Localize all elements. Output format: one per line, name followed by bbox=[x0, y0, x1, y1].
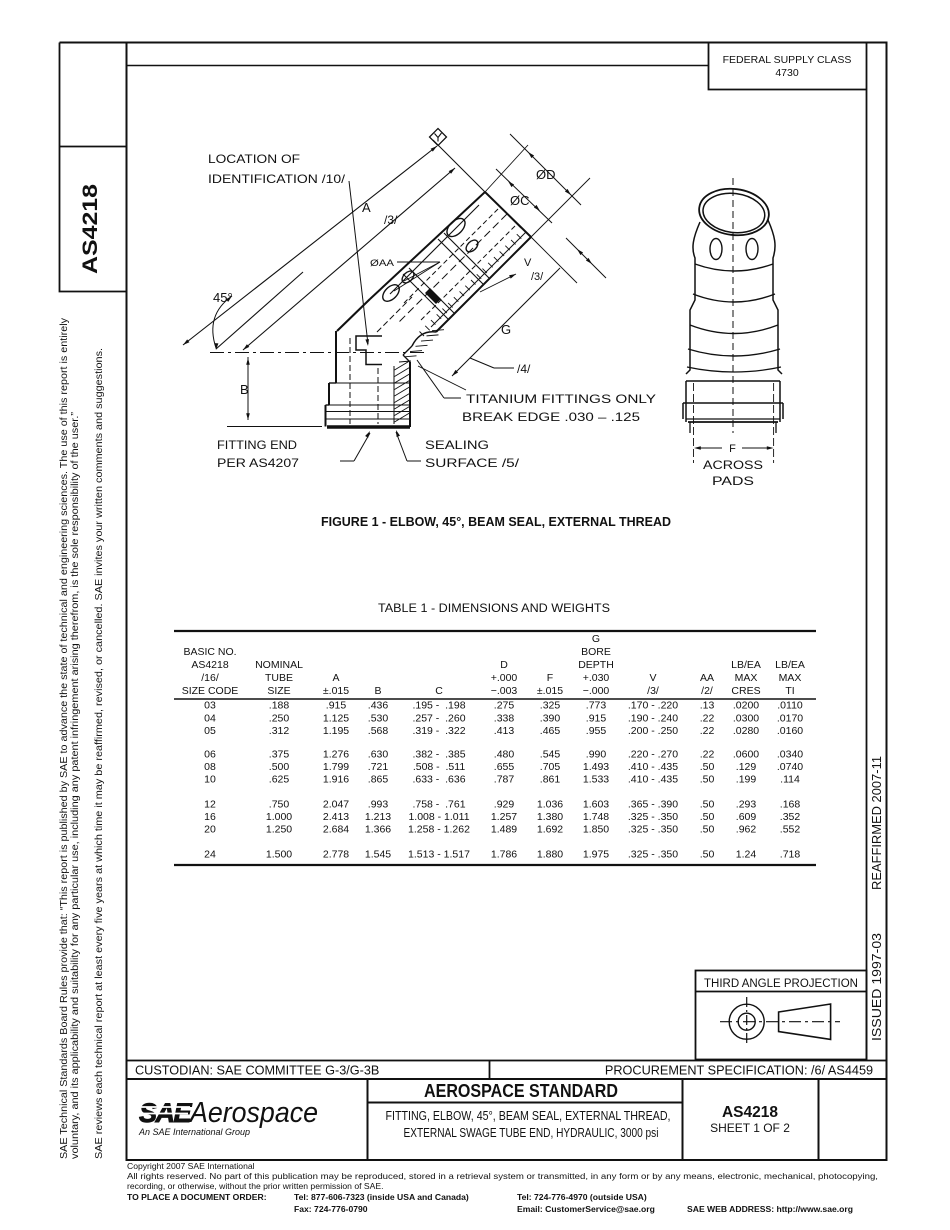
svg-text:BASIC NO.: BASIC NO. bbox=[183, 646, 236, 658]
svg-text:1.489: 1.489 bbox=[491, 824, 517, 836]
svg-text:BREAK EDGE .030 – .125: BREAK EDGE .030 – .125 bbox=[462, 410, 640, 424]
svg-text:16: 16 bbox=[204, 811, 216, 823]
svg-text:ISSUED 1997-03: ISSUED 1997-03 bbox=[869, 933, 884, 1041]
svg-text:.190 - .240: .190 - .240 bbox=[628, 712, 678, 724]
svg-text:.352: .352 bbox=[780, 811, 801, 823]
svg-text:/16/: /16/ bbox=[201, 672, 219, 684]
svg-text:Tel: 724-776-4970 (outside USA: Tel: 724-776-4970 (outside USA) bbox=[517, 1192, 647, 1202]
svg-text:.630: .630 bbox=[368, 749, 389, 761]
svg-text:REAFFIRMED 2007-11: REAFFIRMED 2007-11 bbox=[869, 756, 884, 890]
svg-text:.865: .865 bbox=[368, 774, 389, 786]
svg-text:voluntary, and its applicabili: voluntary, and its applicability and sui… bbox=[70, 412, 81, 1159]
svg-text:LB/EA: LB/EA bbox=[731, 659, 761, 671]
svg-text:1.748: 1.748 bbox=[583, 811, 609, 823]
svg-text:.655: .655 bbox=[494, 761, 515, 773]
svg-text:.915: .915 bbox=[326, 700, 347, 712]
svg-text:.338: .338 bbox=[494, 712, 515, 724]
svg-text:.0110: .0110 bbox=[777, 700, 803, 712]
svg-text:2.778: 2.778 bbox=[323, 849, 349, 861]
svg-text:.0740: .0740 bbox=[777, 761, 803, 773]
svg-text:1.513 - 1.517: 1.513 - 1.517 bbox=[408, 849, 470, 861]
svg-text:SURFACE /5/: SURFACE /5/ bbox=[425, 456, 520, 470]
svg-text:1.250: 1.250 bbox=[266, 824, 292, 836]
svg-text:.50: .50 bbox=[700, 824, 715, 836]
svg-text:.915: .915 bbox=[586, 712, 607, 724]
svg-text:.552: .552 bbox=[780, 824, 801, 836]
svg-text:B: B bbox=[240, 382, 249, 397]
svg-text:.633 - .636: .633 - .636 bbox=[412, 774, 465, 786]
svg-text:.195 - .198: .195 - .198 bbox=[412, 700, 465, 712]
svg-text:1.257: 1.257 bbox=[491, 811, 517, 823]
svg-text:THIRD ANGLE PROJECTION: THIRD ANGLE PROJECTION bbox=[704, 978, 858, 990]
svg-text:1.366: 1.366 bbox=[365, 824, 391, 836]
svg-text:2.047: 2.047 bbox=[323, 799, 349, 811]
svg-text:.955: .955 bbox=[586, 725, 607, 737]
svg-text:.705: .705 bbox=[540, 761, 561, 773]
svg-text:.390: .390 bbox=[540, 712, 561, 724]
svg-text:20: 20 bbox=[204, 824, 216, 836]
svg-text:.410 - .435: .410 - .435 bbox=[628, 774, 678, 786]
svg-text:.168: .168 bbox=[780, 799, 801, 811]
svg-text:.0200: .0200 bbox=[733, 700, 759, 712]
svg-text:recording, or otherwise, witho: recording, or otherwise, without the pri… bbox=[127, 1181, 384, 1191]
svg-text:1.545: 1.545 bbox=[365, 849, 391, 861]
svg-text:SAE WEB ADDRESS: http://www.sa: SAE WEB ADDRESS: http://www.sae.org bbox=[687, 1204, 853, 1214]
svg-text:DEPTH: DEPTH bbox=[578, 659, 614, 671]
svg-text:CRES: CRES bbox=[731, 685, 760, 697]
svg-text:.50: .50 bbox=[700, 761, 715, 773]
svg-text:.257 - .260: .257 - .260 bbox=[412, 712, 465, 724]
svg-text:−.003: −.003 bbox=[491, 685, 518, 697]
svg-text:1.799: 1.799 bbox=[323, 761, 349, 773]
svg-text:/3/: /3/ bbox=[531, 271, 544, 283]
svg-text:Copyright 2007 SAE Internation: Copyright 2007 SAE International bbox=[127, 1161, 255, 1171]
svg-text:.13: .13 bbox=[700, 700, 715, 712]
svg-text:.787: .787 bbox=[494, 774, 515, 786]
svg-text:CUSTODIAN: SAE COMMITTEE G-3/G: CUSTODIAN: SAE COMMITTEE G-3/G-3B bbox=[135, 1064, 379, 1078]
svg-text:+.030: +.030 bbox=[583, 672, 610, 684]
svg-text:NOMINAL: NOMINAL bbox=[255, 659, 303, 671]
svg-text:1.500: 1.500 bbox=[266, 849, 292, 861]
svg-text:.436: .436 bbox=[368, 700, 389, 712]
svg-text:04: 04 bbox=[204, 712, 216, 724]
svg-text:12: 12 bbox=[204, 799, 216, 811]
svg-text:PADS: PADS bbox=[712, 474, 754, 488]
svg-text:FEDERAL SUPPLY CLASS: FEDERAL SUPPLY CLASS bbox=[723, 54, 852, 66]
svg-text:TUBE: TUBE bbox=[265, 672, 293, 684]
svg-text:V: V bbox=[649, 672, 656, 684]
svg-text:.718: .718 bbox=[780, 849, 801, 861]
svg-text:LOCATION OF: LOCATION OF bbox=[208, 152, 300, 166]
svg-text:.50: .50 bbox=[700, 774, 715, 786]
svg-text:.365 - .390: .365 - .390 bbox=[628, 799, 678, 811]
svg-text:TITANIUM FITTINGS ONLY: TITANIUM FITTINGS ONLY bbox=[466, 392, 656, 406]
svg-text:2.684: 2.684 bbox=[323, 824, 349, 836]
svg-text:TI: TI bbox=[785, 685, 794, 697]
svg-text:FITTING, ELBOW, 45°, BEAM SEAL: FITTING, ELBOW, 45°, BEAM SEAL, EXTERNAL… bbox=[386, 1108, 671, 1123]
svg-text:SIZE: SIZE bbox=[267, 685, 290, 697]
svg-text:AS4218: AS4218 bbox=[79, 184, 102, 274]
svg-text:.22: .22 bbox=[700, 725, 715, 737]
svg-text:ØD: ØD bbox=[536, 167, 556, 182]
svg-text:V: V bbox=[524, 257, 532, 269]
svg-text:AA: AA bbox=[700, 672, 714, 684]
svg-text:SEALING: SEALING bbox=[425, 438, 489, 452]
svg-text:.530: .530 bbox=[368, 712, 389, 724]
svg-text:.114: .114 bbox=[780, 774, 800, 786]
svg-text:.750: .750 bbox=[269, 799, 290, 811]
svg-text:1.692: 1.692 bbox=[537, 824, 563, 836]
svg-text:F: F bbox=[729, 443, 737, 455]
svg-text:.0300: .0300 bbox=[733, 712, 759, 724]
svg-text:PER AS4207: PER AS4207 bbox=[217, 456, 299, 470]
svg-text:.508 - .511: .508 - .511 bbox=[413, 761, 466, 773]
svg-text:.250: .250 bbox=[269, 712, 290, 724]
svg-text:FITTING END: FITTING END bbox=[217, 438, 297, 452]
svg-text:.325 - .350: .325 - .350 bbox=[628, 811, 678, 823]
svg-text:PROCUREMENT SPECIFICATION: /6/: PROCUREMENT SPECIFICATION: /6/ AS4459 bbox=[605, 1064, 873, 1078]
svg-text:.200 - .250: .200 - .250 bbox=[628, 725, 678, 737]
svg-text:.382 - .385: .382 - .385 bbox=[412, 749, 465, 761]
svg-text:Aerospace: Aerospace bbox=[188, 1097, 318, 1129]
svg-text:AEROSPACE STANDARD: AEROSPACE STANDARD bbox=[424, 1080, 618, 1101]
svg-text:TABLE 1 - DIMENSIONS AND WEIGH: TABLE 1 - DIMENSIONS AND WEIGHTS bbox=[378, 603, 610, 615]
svg-text:1.258 - 1.262: 1.258 - 1.262 bbox=[408, 824, 470, 836]
svg-text:ØAA: ØAA bbox=[370, 258, 395, 269]
svg-text:ØC: ØC bbox=[510, 193, 530, 208]
svg-text:.480: .480 bbox=[494, 749, 515, 761]
svg-text:.129: .129 bbox=[736, 761, 757, 773]
svg-text:10: 10 bbox=[204, 774, 216, 786]
svg-text:06: 06 bbox=[204, 749, 216, 761]
svg-text:1.850: 1.850 bbox=[583, 824, 609, 836]
svg-text:.319 - .322: .319 - .322 bbox=[412, 725, 465, 737]
svg-text:1.380: 1.380 bbox=[537, 811, 563, 823]
svg-text:.861: .861 bbox=[540, 774, 561, 786]
svg-text:SIZE CODE: SIZE CODE bbox=[182, 685, 239, 697]
svg-text:.22: .22 bbox=[700, 712, 715, 724]
svg-text:/3/: /3/ bbox=[384, 213, 398, 227]
svg-text:.50: .50 bbox=[700, 811, 715, 823]
svg-text:.0600: .0600 bbox=[733, 749, 759, 761]
svg-text:1.036: 1.036 bbox=[537, 799, 563, 811]
svg-text:.929: .929 bbox=[494, 799, 515, 811]
svg-text:45°: 45° bbox=[213, 290, 233, 305]
svg-text:.0160: .0160 bbox=[777, 725, 803, 737]
svg-text:Tel: 877-606-7323 (inside USA: Tel: 877-606-7323 (inside USA and Canada… bbox=[294, 1192, 469, 1202]
svg-text:/3/: /3/ bbox=[647, 685, 659, 697]
svg-text:All rights reserved. No part o: All rights reserved. No part of this pub… bbox=[127, 1171, 878, 1181]
svg-text:1.493: 1.493 bbox=[583, 761, 609, 773]
svg-text:.22: .22 bbox=[700, 749, 715, 761]
svg-text:1.786: 1.786 bbox=[491, 849, 517, 861]
svg-text:IDENTIFICATION /10/: IDENTIFICATION /10/ bbox=[208, 172, 346, 186]
svg-text:.773: .773 bbox=[586, 700, 607, 712]
svg-text:±.015: ±.015 bbox=[537, 685, 563, 697]
svg-text:TO PLACE A DOCUMENT ORDER:: TO PLACE A DOCUMENT ORDER: bbox=[127, 1192, 267, 1202]
svg-text:1.916: 1.916 bbox=[323, 774, 349, 786]
svg-text:1.276: 1.276 bbox=[323, 749, 349, 761]
svg-text:/2/: /2/ bbox=[701, 685, 713, 697]
svg-text:03: 03 bbox=[204, 700, 216, 712]
svg-text:MAX: MAX bbox=[779, 672, 802, 684]
svg-text:.568: .568 bbox=[368, 725, 389, 737]
svg-text:.962: .962 bbox=[736, 824, 757, 836]
svg-text:05: 05 bbox=[204, 725, 216, 737]
svg-text:.758 - .761: .758 - .761 bbox=[412, 799, 465, 811]
svg-text:1.008 - 1.011: 1.008 - 1.011 bbox=[408, 811, 469, 823]
svg-text:1.000: 1.000 bbox=[266, 811, 292, 823]
svg-text:ACROSS: ACROSS bbox=[703, 458, 763, 472]
svg-text:1.603: 1.603 bbox=[583, 799, 609, 811]
svg-text:A: A bbox=[362, 200, 371, 215]
svg-text:G: G bbox=[501, 322, 511, 337]
svg-text:24: 24 bbox=[204, 849, 216, 861]
svg-text:SHEET 1 OF 2: SHEET 1 OF 2 bbox=[710, 1121, 790, 1135]
svg-text:An SAE International Group: An SAE International Group bbox=[138, 1127, 250, 1137]
svg-text:1.24: 1.24 bbox=[736, 849, 757, 861]
svg-text:.609: .609 bbox=[736, 811, 757, 823]
svg-text:.312: .312 bbox=[269, 725, 290, 737]
svg-text:.325 - .350: .325 - .350 bbox=[628, 849, 678, 861]
svg-text:.410 - .435: .410 - .435 bbox=[628, 761, 678, 773]
svg-text:Email: CustomerService@sae.or: Email: CustomerService@sae.org bbox=[517, 1204, 655, 1214]
svg-text:.465: .465 bbox=[540, 725, 561, 737]
svg-text:BORE: BORE bbox=[581, 646, 611, 658]
svg-text:1.213: 1.213 bbox=[365, 811, 391, 823]
svg-text:.0280: .0280 bbox=[733, 725, 759, 737]
svg-text:G: G bbox=[592, 633, 600, 645]
svg-text:.199: .199 bbox=[736, 774, 757, 786]
svg-text:AS4218: AS4218 bbox=[191, 659, 229, 671]
svg-text:+.000: +.000 bbox=[491, 672, 518, 684]
svg-text:A: A bbox=[332, 672, 339, 684]
svg-text:.721: .721 bbox=[368, 761, 389, 773]
svg-text:.50: .50 bbox=[700, 799, 715, 811]
svg-text:.375: .375 bbox=[269, 749, 290, 761]
svg-text:.293: .293 bbox=[736, 799, 757, 811]
svg-text:Fax: 724-776-0790: Fax: 724-776-0790 bbox=[294, 1204, 368, 1214]
svg-text:.325 - .350: .325 - .350 bbox=[628, 824, 678, 836]
svg-text:.188: .188 bbox=[269, 700, 290, 712]
svg-text:C: C bbox=[435, 685, 443, 697]
svg-text:1.125: 1.125 bbox=[323, 712, 349, 724]
svg-text:D: D bbox=[500, 659, 508, 671]
svg-text:B: B bbox=[374, 685, 381, 697]
svg-text:SAE reviews each technical rep: SAE reviews each technical report at lea… bbox=[94, 348, 105, 1159]
svg-text:AS4218: AS4218 bbox=[722, 1104, 778, 1121]
svg-text:.413: .413 bbox=[494, 725, 515, 737]
svg-text:FIGURE 1 - ELBOW, 45°, BEAM SE: FIGURE 1 - ELBOW, 45°, BEAM SEAL, EXTERN… bbox=[321, 515, 671, 529]
svg-text:.500: .500 bbox=[269, 761, 290, 773]
svg-text:.625: .625 bbox=[269, 774, 290, 786]
svg-text:.220 - .270: .220 - .270 bbox=[628, 749, 678, 761]
svg-text:1.880: 1.880 bbox=[537, 849, 563, 861]
svg-text:2.413: 2.413 bbox=[323, 811, 349, 823]
svg-text:.0170: .0170 bbox=[777, 712, 803, 724]
svg-text:4730: 4730 bbox=[775, 67, 799, 79]
svg-text:−.000: −.000 bbox=[583, 685, 610, 697]
svg-text:08: 08 bbox=[204, 761, 216, 773]
svg-text:1.975: 1.975 bbox=[583, 849, 609, 861]
svg-text:LB/EA: LB/EA bbox=[775, 659, 805, 671]
svg-text:/4/: /4/ bbox=[517, 362, 531, 376]
svg-text:.0340: .0340 bbox=[777, 749, 803, 761]
svg-text:MAX: MAX bbox=[735, 672, 758, 684]
svg-text:.993: .993 bbox=[368, 799, 389, 811]
svg-text:±.015: ±.015 bbox=[323, 685, 349, 697]
svg-text:1.533: 1.533 bbox=[583, 774, 609, 786]
svg-text:.50: .50 bbox=[700, 849, 715, 861]
svg-text:.545: .545 bbox=[540, 749, 561, 761]
svg-text:.275: .275 bbox=[494, 700, 515, 712]
svg-text:SAE Technical Standards Board: SAE Technical Standards Board Rules prov… bbox=[59, 318, 70, 1159]
svg-text:.990: .990 bbox=[586, 749, 607, 761]
svg-text:.170 - .220: .170 - .220 bbox=[628, 700, 678, 712]
svg-text:F: F bbox=[547, 672, 553, 684]
svg-text:.325: .325 bbox=[540, 700, 561, 712]
svg-text:EXTERNAL SWAGE TUBE END, HYDRA: EXTERNAL SWAGE TUBE END, HYDRAULIC, 3000… bbox=[404, 1125, 659, 1140]
svg-text:1.195: 1.195 bbox=[323, 725, 349, 737]
